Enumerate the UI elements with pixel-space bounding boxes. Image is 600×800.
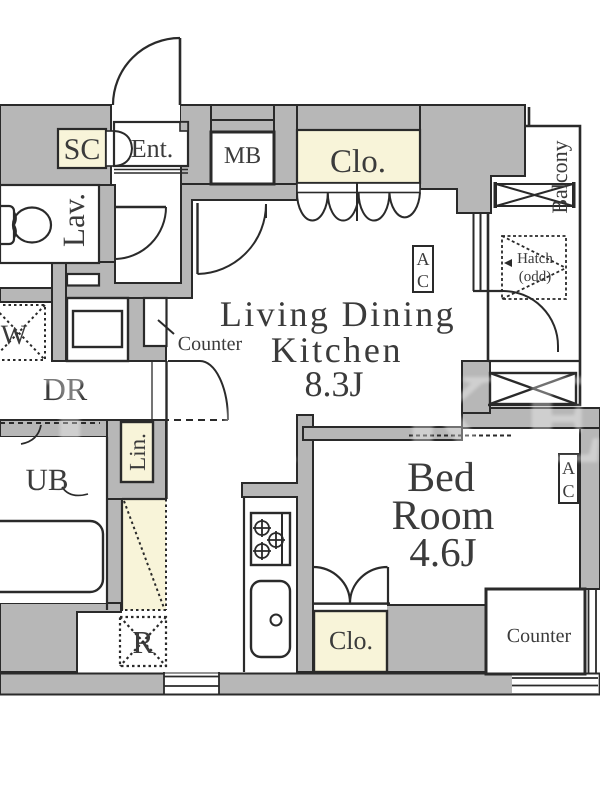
svg-text:A: A (203, 347, 297, 491)
svg-text:R: R (132, 624, 154, 660)
svg-text:MB: MB (224, 143, 261, 169)
svg-text:C: C (417, 271, 429, 291)
svg-text:Living Dining: Living Dining (220, 294, 456, 334)
svg-text:A: A (417, 249, 430, 269)
svg-text:Counter: Counter (507, 625, 572, 647)
svg-text:W: W (1, 320, 28, 351)
svg-text:(odd): (odd) (519, 269, 552, 285)
svg-text:Lin.: Lin. (125, 433, 150, 471)
svg-text:8.3J: 8.3J (304, 364, 363, 404)
svg-text:Ent.: Ent. (131, 134, 174, 163)
svg-text:E: E (519, 347, 600, 491)
svg-text:K: K (399, 347, 500, 491)
svg-text:SC: SC (64, 133, 101, 166)
svg-text:T: T (27, 347, 114, 491)
svg-text:Clo.: Clo. (330, 144, 386, 180)
svg-text:Lav.: Lav. (56, 193, 91, 247)
svg-text:Clo.: Clo. (329, 626, 373, 655)
svg-text:4.6J: 4.6J (409, 529, 476, 575)
svg-text:Balcony: Balcony (547, 140, 572, 213)
svg-text:Hatch: Hatch (517, 251, 553, 267)
